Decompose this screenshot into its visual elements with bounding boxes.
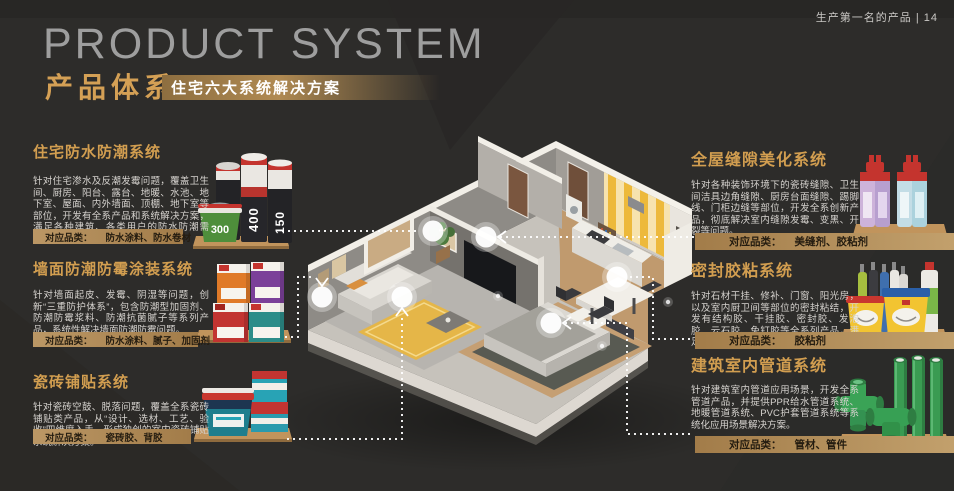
- sealant-bucket-large: [884, 296, 928, 336]
- page-corner-label: 生产第一名的产品 | 14: [816, 9, 938, 25]
- kitchen-counter: [572, 220, 652, 287]
- section-title: 墙面防潮防霉涂装系统: [33, 258, 209, 279]
- category-label: 对应品类：: [45, 430, 93, 444]
- section-desc: 针对各种装饰环境下的瓷砖缝隙、卫生间洁具边角缝隙、厨房台面缝隙、踢脚线、门柜边缝…: [691, 180, 859, 238]
- sink: [612, 243, 634, 256]
- bucket-300-label: 300: [211, 224, 229, 236]
- section-title: 瓷砖铺贴系统: [33, 371, 209, 392]
- category-value: 防水涂料、腻子、加固剂: [106, 333, 211, 347]
- category-value: 胶粘剂: [795, 333, 827, 348]
- category-bar-waterproofing: 对应品类： 防水涂料、防水卷材: [33, 229, 183, 244]
- orange-pillow: [346, 279, 368, 290]
- back-right-wall: [556, 148, 692, 274]
- accent-lights: [493, 291, 673, 351]
- connector-2: [285, 277, 314, 337]
- category-label: 对应品类：: [45, 230, 93, 244]
- category-label: 对应品类：: [729, 333, 782, 348]
- bathroom-door: [508, 164, 528, 218]
- bed: [484, 302, 634, 377]
- cooktop: [586, 230, 610, 244]
- category-label: 对应品类：: [729, 234, 782, 249]
- sofa: [334, 246, 432, 325]
- section-title: 全屋缝隙美化系统: [691, 146, 859, 170]
- section-title: 建筑室内管道系统: [691, 352, 859, 376]
- section-title: 密封胶粘系统: [691, 257, 859, 281]
- products-coating-boxes: [213, 262, 284, 342]
- bedroom-wood-floor: [458, 302, 652, 398]
- subtitle-banner: 住宅六大系统解决方案: [162, 75, 440, 100]
- wall-picture-small: [332, 254, 346, 279]
- wall-picture-small: [318, 268, 329, 290]
- category-bar-wall-coating: 对应品类： 防水涂料、腻子、加固剂: [33, 332, 198, 347]
- category-value: 瓷砖胶、背胶: [106, 430, 163, 444]
- back-left-wall: [308, 148, 556, 330]
- page-title-zh: 产品体系: [45, 66, 177, 106]
- bathroom-wall: [478, 136, 562, 229]
- connector-5: [630, 277, 694, 339]
- connector-3: [287, 314, 402, 439]
- connector-lines: [282, 231, 694, 439]
- marker-seam: [471, 222, 501, 252]
- living-room-tile-floor: [322, 258, 548, 370]
- section-wall-coating: 墙面防潮防霉涂装系统 针对墙面起皮、发霉、阴湿等问题，创新“三重防护体系”，包含…: [33, 258, 209, 336]
- kitchen-window: [676, 226, 688, 252]
- section-seam-beautify: 全屋缝隙美化系统 针对各种装饰环境下的瓷砖缝隙、卫生间洁具边角缝隙、厨房台面缝隙…: [691, 146, 859, 238]
- dining-table: [556, 277, 662, 324]
- washing-machine: [566, 194, 582, 224]
- kitchen-wood-floor: [558, 208, 690, 344]
- marker-pipes: [536, 308, 566, 338]
- range-hood: [628, 196, 644, 214]
- connector-arrows: [316, 231, 571, 329]
- category-bar-seam-beautify: 对应品类： 美缝剂、胶粘剂: [695, 233, 954, 250]
- marker-wall-coating: [307, 282, 337, 312]
- plant: [429, 222, 455, 264]
- category-label: 对应品类：: [729, 437, 782, 452]
- subtitle-banner-text: 住宅六大系统解决方案: [162, 77, 341, 98]
- bedroom-tv: [464, 240, 516, 304]
- section-desc: 针对墙面起皮、发霉、阴湿等问题，创新“三重防护体系”，包含防潮型加固剂、防潮防霉…: [33, 290, 209, 336]
- section-pipes: 建筑室内管道系统 针对建筑室内管道应用场景，开发全系管道产品，并提供PPR给水管…: [691, 352, 859, 431]
- products-sealants: [846, 262, 938, 336]
- roll-400-label: 400: [246, 207, 261, 232]
- chair: [640, 281, 662, 292]
- products-tile-adhesive: [202, 371, 288, 436]
- category-value: 防水涂料、防水卷材: [106, 230, 192, 244]
- chair: [556, 288, 582, 301]
- coffee-table: [426, 311, 470, 333]
- category-bar-sealant: 对应品类： 胶粘剂: [695, 332, 954, 349]
- yellow-rug: [358, 299, 482, 360]
- category-label: 对应品类：: [45, 333, 93, 347]
- interior-partition-wall: [430, 205, 544, 315]
- isometric-apartment-illustration: [255, 136, 745, 472]
- section-desc: 针对建筑室内管道应用场景，开发全系管道产品，并提供PPR给水管道系统、地暖管道系…: [691, 385, 859, 431]
- small-frame: [440, 226, 456, 252]
- section-title: 住宅防水防潮系统: [33, 141, 209, 162]
- bedroom-rug: [472, 309, 640, 390]
- chair: [588, 306, 614, 319]
- category-bar-tile-laying: 对应品类： 瓷砖胶、背胶: [33, 429, 191, 444]
- connector-markers: [307, 216, 632, 338]
- marker-waterproofing: [418, 216, 448, 246]
- category-bar-pipes: 对应品类： 管材、管件: [695, 436, 954, 453]
- marker-tile: [387, 282, 417, 312]
- category-value: 管材、管件: [795, 437, 848, 452]
- kitchen-striped-wall: [604, 172, 670, 260]
- headboard: [606, 316, 634, 340]
- page-title-en: PRODUCT SYSTEM: [43, 20, 486, 69]
- bookshelf: [598, 222, 616, 252]
- category-value: 美缝剂、胶粘剂: [795, 234, 869, 249]
- slide: 400 150 300: [0, 0, 954, 491]
- connector-6: [565, 323, 694, 434]
- tile-glue-bucket: [204, 400, 252, 436]
- hall-door: [568, 162, 588, 220]
- products-seam-beautifier: [860, 155, 927, 227]
- wall-picture-large: [364, 216, 414, 275]
- roll-150-label: 150: [273, 211, 287, 234]
- marker-sealant: [602, 262, 632, 292]
- products-waterproofing: 400 150 300: [198, 153, 292, 243]
